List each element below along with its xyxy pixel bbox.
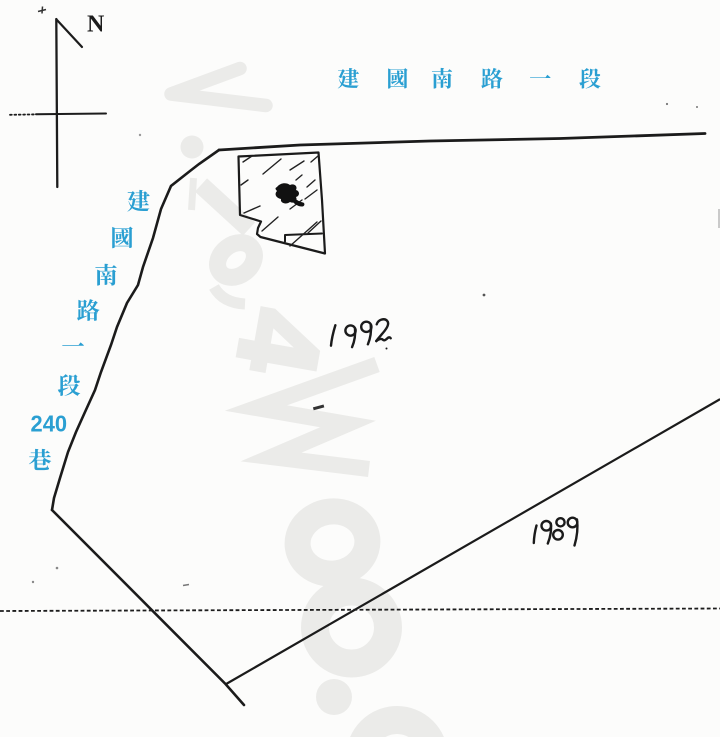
svg-text:N: N xyxy=(87,12,105,38)
svg-text:240: 240 xyxy=(31,410,68,436)
svg-text:4: 4 xyxy=(213,300,347,383)
